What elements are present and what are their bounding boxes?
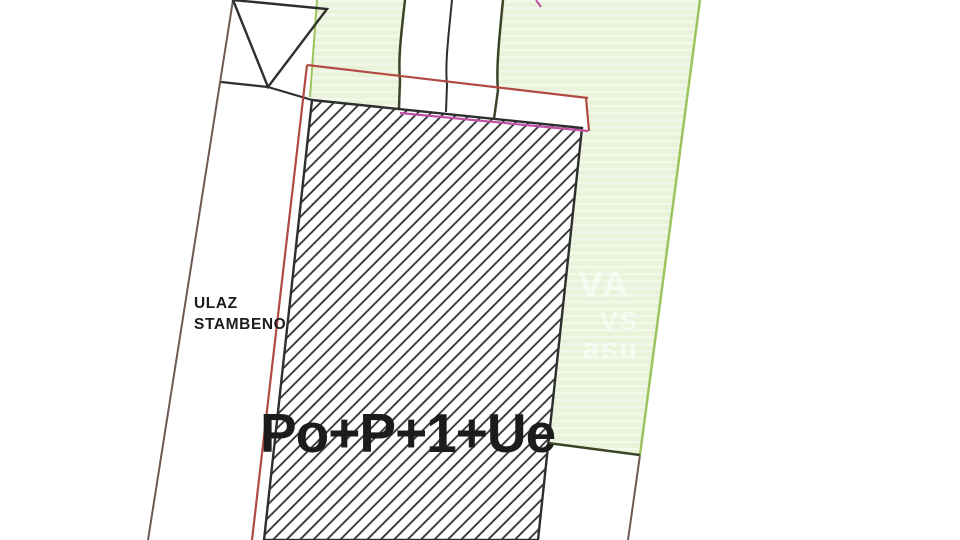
site-plan-canvas: ULAZ STAMBENO Po+P+1+Ue VA VS asu	[0, 0, 960, 540]
triangle-base-line	[221, 82, 268, 87]
building-footprint-hatch	[264, 100, 582, 540]
triangle-connector-line	[268, 87, 312, 100]
entrance-label-line2: STAMBENO	[194, 314, 286, 335]
entrance-label-line1: ULAZ	[194, 293, 286, 314]
entrance-label: ULAZ STAMBENO	[194, 293, 286, 335]
building-designation-label: Po+P+1+Ue	[260, 406, 555, 461]
walkway-middle-line	[446, 0, 452, 112]
parcel-boundary-left	[148, 0, 233, 540]
green-area-left-strip	[311, 0, 403, 108]
parcel-boundary-bottom-right	[628, 455, 640, 540]
